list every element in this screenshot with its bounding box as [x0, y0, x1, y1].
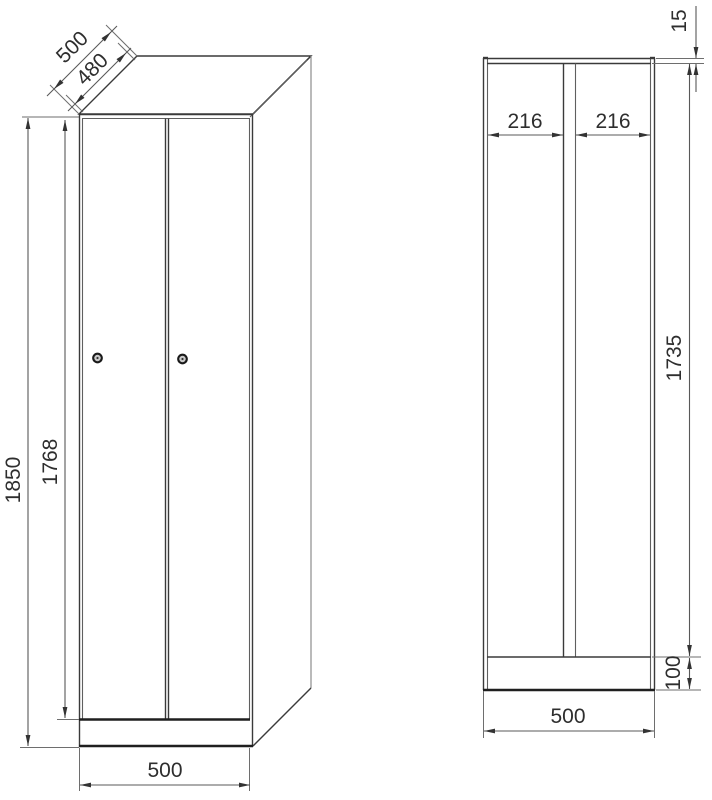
left-door [83, 119, 166, 720]
section-right-wall [650, 58, 655, 691]
dim-inner-height: 1735 [652, 64, 701, 657]
left-door-lock-icon [93, 354, 102, 363]
locker-drawing: 1850 1768 500 500 [0, 0, 712, 800]
dim-base-height: 100 [656, 655, 701, 690]
dim-compartment-right: 216 [576, 110, 650, 137]
section-view [483, 58, 655, 691]
dim-label-top-gap: 15 [668, 9, 691, 32]
technical-drawing-canvas: 1850 1768 500 500 [0, 0, 712, 800]
section-center-divider [564, 64, 576, 658]
dim-label-compartment-left: 216 [507, 110, 542, 133]
dim-section-width: 500 [484, 691, 655, 738]
dim-front-width: 500 [80, 748, 251, 791]
right-door-lock-icon [178, 355, 187, 364]
section-left-wall [483, 58, 488, 691]
dim-label-inner-height: 1735 [663, 335, 686, 382]
right-door [169, 119, 250, 720]
front-dimensions: 1850 1768 500 500 [2, 25, 250, 791]
dim-label-overall-height: 1850 [2, 457, 25, 504]
section-dimensions: 216 216 15 1735 [484, 6, 705, 738]
dim-label-compartment-right: 216 [595, 110, 630, 133]
dim-overall-height: 1850 [2, 117, 79, 748]
dim-door-height: 1768 [39, 120, 79, 720]
dim-label-base-height: 100 [662, 655, 685, 690]
dim-top-gap: 15 [652, 6, 704, 92]
dim-label-door-height: 1768 [39, 439, 62, 486]
dim-compartment-left: 216 [488, 110, 563, 137]
dim-label-section-width: 500 [550, 705, 585, 728]
side-face [250, 56, 311, 746]
front-view [79, 56, 311, 747]
dim-label-front-width: 500 [147, 759, 182, 782]
